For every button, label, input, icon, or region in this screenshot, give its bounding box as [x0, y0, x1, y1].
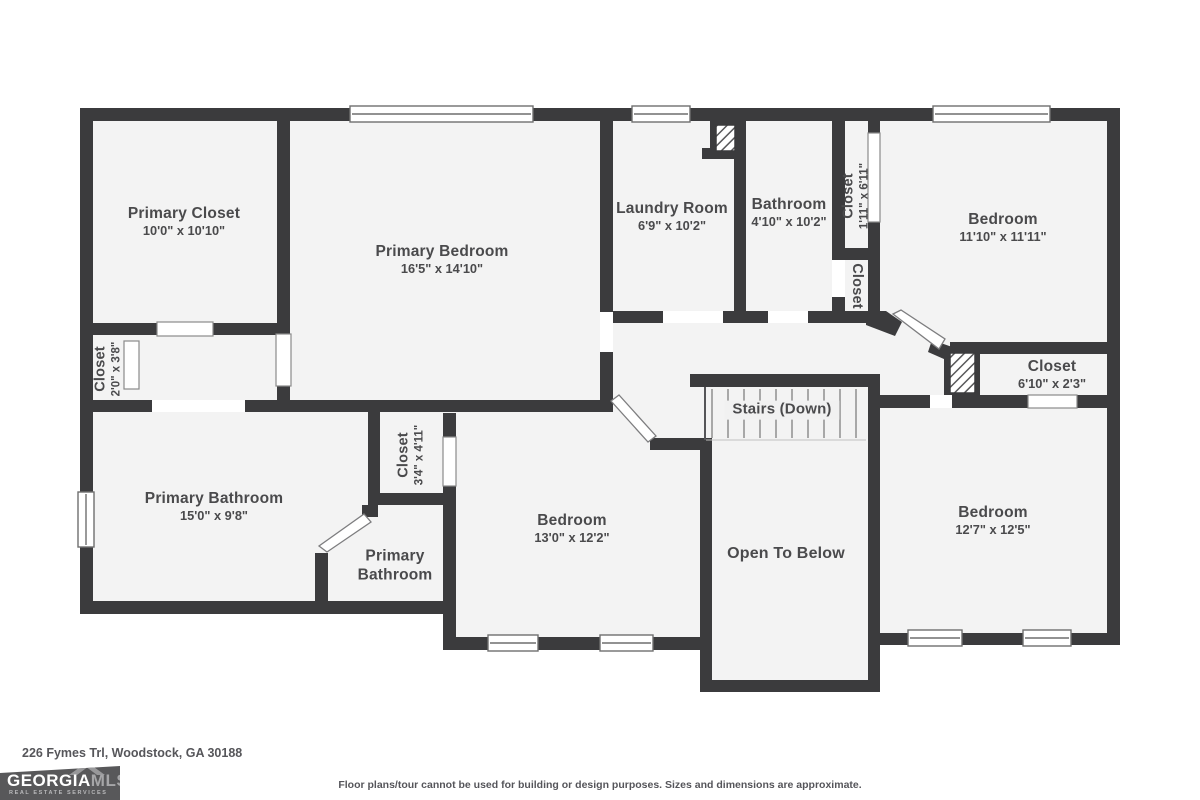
room-dims: 10'0" x 10'10" — [128, 223, 240, 240]
room-name: Bedroom — [959, 210, 1046, 229]
room-dims: 11'10" x 11'11" — [959, 229, 1046, 246]
room-label-closet-right: Closet 6'10" x 2'3" — [1018, 357, 1086, 393]
room-label-hall-closet-small: Closet — [848, 263, 866, 309]
room-name: Bedroom — [955, 503, 1030, 522]
room-label-bathroom: Bathroom 4'10" x 10'2" — [751, 195, 826, 231]
logo-brand-primary: GEORGIA — [7, 771, 91, 790]
room-label-closet-left: Closet 2'0" x 3'8" — [91, 342, 124, 397]
property-address: 226 Fymes Trl, Woodstock, GA 30188 — [22, 746, 242, 760]
logo-tagline: REAL ESTATE SERVICES — [9, 790, 108, 796]
room-label-bedroom-center: Bedroom 13'0" x 12'2" — [534, 511, 609, 547]
logo-brand: GEORGIAMLS — [7, 772, 128, 789]
room-dims: 3'4" x 4'11" — [413, 425, 428, 486]
room-name: Primary Closet — [128, 204, 240, 223]
room-dims: 2'0" x 3'8" — [110, 342, 125, 397]
room-name: Primary Bathroom — [339, 547, 451, 586]
room-name: Closet — [1018, 357, 1086, 376]
room-name: Bathroom — [751, 195, 826, 214]
room-dims: 13'0" x 12'2" — [534, 530, 609, 547]
room-name: Stairs (Down) — [724, 401, 839, 420]
room-label-bedroom-bottom-right: Bedroom 12'7" x 12'5" — [955, 503, 1030, 539]
room-dims: 6'9" x 10'2" — [616, 218, 728, 235]
room-label-primary-bedroom: Primary Bedroom 16'5" x 14'10" — [375, 242, 508, 278]
room-label-hall-closet: Closet 1'11" x 6'11" — [839, 163, 872, 229]
room-label-closet-mid: Closet 3'4" x 4'11" — [394, 425, 427, 486]
disclaimer-text: Floor plans/tour cannot be used for buil… — [0, 779, 1200, 791]
floor-plan-drawing — [0, 0, 1200, 800]
room-dims: 1'11" x 6'11" — [858, 163, 873, 229]
room-label-primary-bathroom-wc: Primary Bathroom — [339, 547, 451, 586]
room-name: Primary Bathroom — [145, 489, 283, 508]
room-label-laundry-room: Laundry Room 6'9" x 10'2" — [616, 199, 728, 235]
room-dims: 12'7" x 12'5" — [955, 522, 1030, 539]
room-name: Closet — [91, 342, 109, 397]
room-label-bedroom-top-right: Bedroom 11'10" x 11'11" — [959, 210, 1046, 246]
room-name: Laundry Room — [616, 199, 728, 218]
room-name: Closet — [839, 163, 857, 229]
floor-plan-page: Primary Closet 10'0" x 10'10" Primary Be… — [0, 0, 1200, 800]
room-dims: 15'0" x 9'8" — [145, 508, 283, 525]
room-dims: 6'10" x 2'3" — [1018, 376, 1086, 393]
room-name: Closet — [394, 425, 412, 486]
room-name: Bedroom — [534, 511, 609, 530]
room-label-primary-bathroom: Primary Bathroom 15'0" x 9'8" — [145, 489, 283, 525]
room-name: Primary Bedroom — [375, 242, 508, 261]
room-dims: 4'10" x 10'2" — [751, 214, 826, 231]
room-name: Closet — [848, 263, 866, 309]
room-dims: 16'5" x 14'10" — [375, 261, 508, 278]
room-label-stairs-down: Stairs (Down) — [724, 401, 839, 420]
room-label-primary-closet: Primary Closet 10'0" x 10'10" — [128, 204, 240, 240]
room-name: Open To Below — [727, 544, 845, 564]
room-label-open-to-below: Open To Below — [727, 544, 845, 564]
